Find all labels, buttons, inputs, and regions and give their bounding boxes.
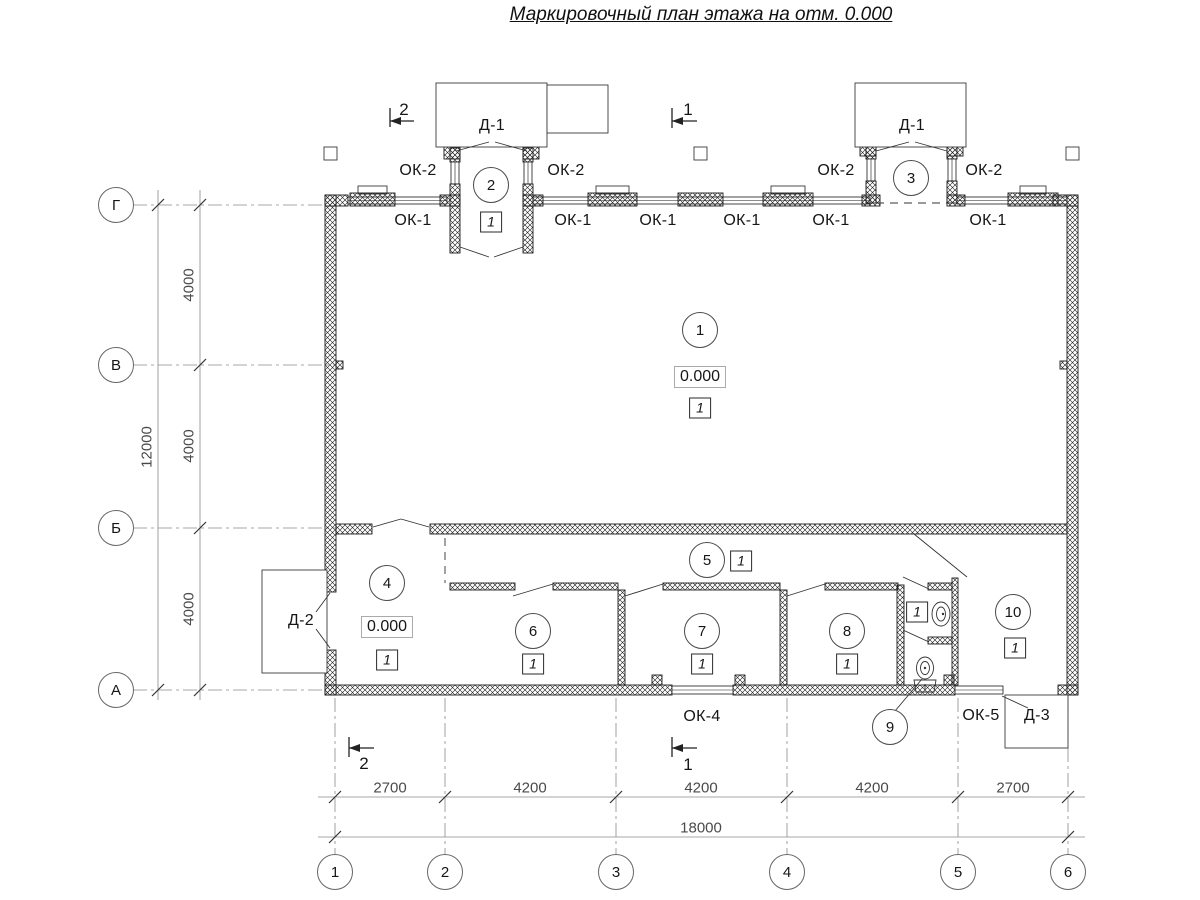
window-label-ok2: ОК-2 <box>817 162 854 180</box>
axis-circle-3: 3 <box>598 854 634 890</box>
drawing-title: Маркировочный план этажа на отм. 0.000 <box>510 4 893 26</box>
axis-circle-2: 2 <box>427 854 463 890</box>
window-label-ok2: ОК-2 <box>965 162 1002 180</box>
floor-type-mark: 1 <box>522 654 544 675</box>
floor-type-mark: 1 <box>376 650 398 671</box>
elevation-mark: 0.000 <box>361 616 413 638</box>
floor-type-mark: 1 <box>906 602 928 623</box>
window-label-ok2: ОК-2 <box>399 162 436 180</box>
room-number-10: 10 <box>995 594 1031 630</box>
window-label-ok1: ОК-1 <box>969 212 1006 230</box>
door-label-d1: Д-1 <box>899 117 925 135</box>
room-number-8: 8 <box>829 613 865 649</box>
axis-circle-b: Б <box>98 510 134 546</box>
floor-type-mark: 1 <box>691 654 713 675</box>
axis-circle-a: А <box>98 672 134 708</box>
dim-4200: 4200 <box>684 780 717 797</box>
dim-4000: 4000 <box>181 268 198 301</box>
floor-plan-drawing: Маркировочный план этажа на отм. 0.000 Г… <box>0 0 1200 900</box>
floor-type-mark: 1 <box>689 398 711 419</box>
window-label-ok5: ОК-5 <box>962 707 999 725</box>
room-number-2: 2 <box>473 167 509 203</box>
door-label-d2: Д-2 <box>288 612 314 630</box>
axis-circle-1: 1 <box>317 854 353 890</box>
floor-type-mark: 1 <box>836 654 858 675</box>
sink-icon <box>932 602 950 626</box>
window-label-ok1: ОК-1 <box>723 212 760 230</box>
dim-4200: 4200 <box>513 780 546 797</box>
axis-circle-g: Г <box>98 187 134 223</box>
dim-18000: 18000 <box>680 820 722 837</box>
floor-type-mark: 1 <box>1004 638 1026 659</box>
room-number-3: 3 <box>893 160 929 196</box>
dim-4200: 4200 <box>855 780 888 797</box>
dimension-lines <box>152 190 1085 843</box>
window-label-ok1: ОК-1 <box>394 212 431 230</box>
section-mark-2-top: 2 <box>399 100 408 120</box>
section-mark-1-bottom: 1 <box>683 755 692 775</box>
window-label-ok1: ОК-1 <box>639 212 676 230</box>
dim-12000: 12000 <box>139 426 156 468</box>
room-number-1: 1 <box>682 312 718 348</box>
dim-2700: 2700 <box>373 780 406 797</box>
elevation-mark: 0.000 <box>674 366 726 388</box>
dim-2700: 2700 <box>996 780 1029 797</box>
section-mark-1-top: 1 <box>683 100 692 120</box>
axis-circle-v: В <box>98 347 134 383</box>
room-number-4: 4 <box>369 565 405 601</box>
dim-4000: 4000 <box>181 592 198 625</box>
axis-circle-6: 6 <box>1050 854 1086 890</box>
room-number-7: 7 <box>684 613 720 649</box>
floor-type-mark: 1 <box>730 551 752 572</box>
window-label-ok2: ОК-2 <box>547 162 584 180</box>
room-number-5: 5 <box>689 542 725 578</box>
axis-circle-5: 5 <box>940 854 976 890</box>
room-number-9: 9 <box>872 709 908 745</box>
door-label-d3: Д-3 <box>1024 707 1050 725</box>
window-label-ok4: ОК-4 <box>683 708 720 726</box>
door-label-d1: Д-1 <box>479 117 505 135</box>
section-mark-2-bottom: 2 <box>359 754 368 774</box>
axis-circle-4: 4 <box>769 854 805 890</box>
dim-4000: 4000 <box>181 429 198 462</box>
floor-type-mark: 1 <box>480 212 502 233</box>
window-label-ok1: ОК-1 <box>812 212 849 230</box>
window-label-ok1: ОК-1 <box>554 212 591 230</box>
room-number-6: 6 <box>515 613 551 649</box>
